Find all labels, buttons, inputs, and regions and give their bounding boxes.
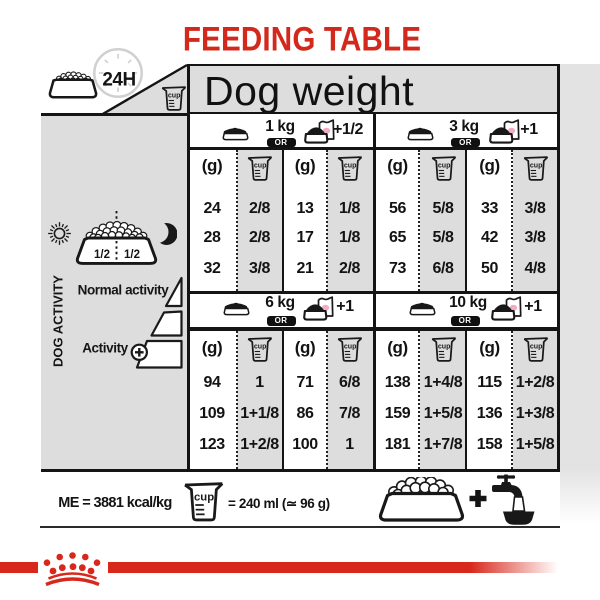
svg-text:1/2: 1/2 — [124, 249, 140, 261]
svg-text:1/2: 1/2 — [94, 249, 110, 261]
